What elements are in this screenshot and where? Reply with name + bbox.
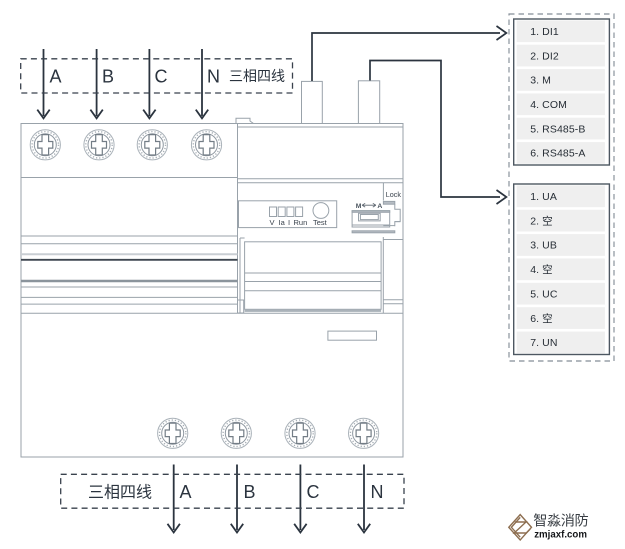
svg-text:A: A [377, 203, 382, 210]
svg-text:C: C [307, 482, 320, 502]
svg-text:三相四线: 三相四线 [229, 68, 285, 84]
svg-text:2. 空: 2. 空 [530, 214, 553, 227]
svg-text:N: N [371, 482, 384, 502]
svg-text:Run: Run [294, 218, 308, 227]
svg-text:6. RS485-A: 6. RS485-A [530, 148, 585, 160]
svg-text:智淼消防: 智淼消防 [533, 514, 588, 530]
svg-text:1. DI1: 1. DI1 [530, 26, 559, 38]
svg-text:I: I [288, 218, 290, 227]
svg-text:C: C [155, 67, 168, 87]
svg-text:2. DI2: 2. DI2 [530, 50, 559, 62]
svg-text:Ia: Ia [279, 218, 286, 227]
svg-text:V: V [270, 218, 275, 227]
svg-text:1. UA: 1. UA [530, 191, 557, 203]
svg-text:N: N [207, 67, 220, 87]
svg-text:3. M: 3. M [530, 75, 551, 87]
svg-text:7. UN: 7. UN [530, 337, 557, 349]
svg-text:3. UB: 3. UB [530, 240, 557, 252]
svg-text:B: B [102, 67, 114, 87]
svg-text:B: B [244, 482, 256, 502]
svg-text:4. 空: 4. 空 [530, 263, 553, 276]
svg-text:A: A [180, 482, 192, 502]
svg-text:6. 空: 6. 空 [530, 312, 553, 325]
svg-text:Test: Test [313, 218, 328, 227]
svg-text:5. UC: 5. UC [530, 288, 558, 300]
svg-text:zmjaxf.com: zmjaxf.com [534, 529, 587, 540]
svg-text:M: M [356, 203, 362, 210]
svg-text:5. RS485-B: 5. RS485-B [530, 123, 585, 135]
svg-text:A: A [50, 67, 62, 87]
svg-text:三相四线: 三相四线 [88, 484, 152, 502]
svg-text:4. COM: 4. COM [530, 99, 567, 111]
svg-text:Lock: Lock [386, 190, 402, 199]
